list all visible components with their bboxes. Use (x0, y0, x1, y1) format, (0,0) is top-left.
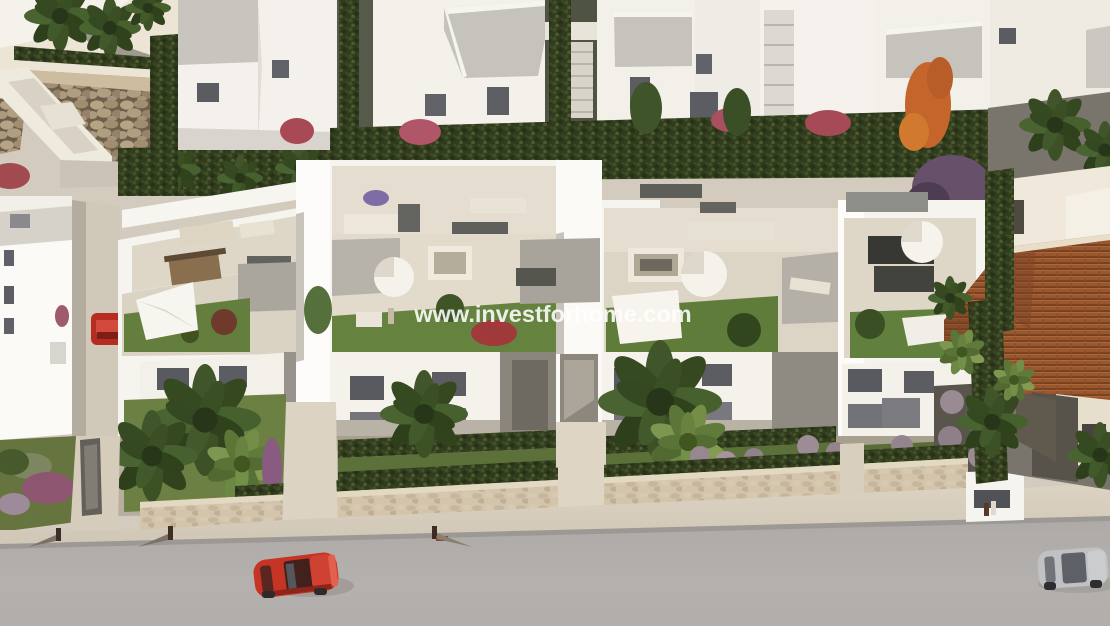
svg-text:www.investforhome.com: www.investforhome.com (413, 301, 691, 327)
